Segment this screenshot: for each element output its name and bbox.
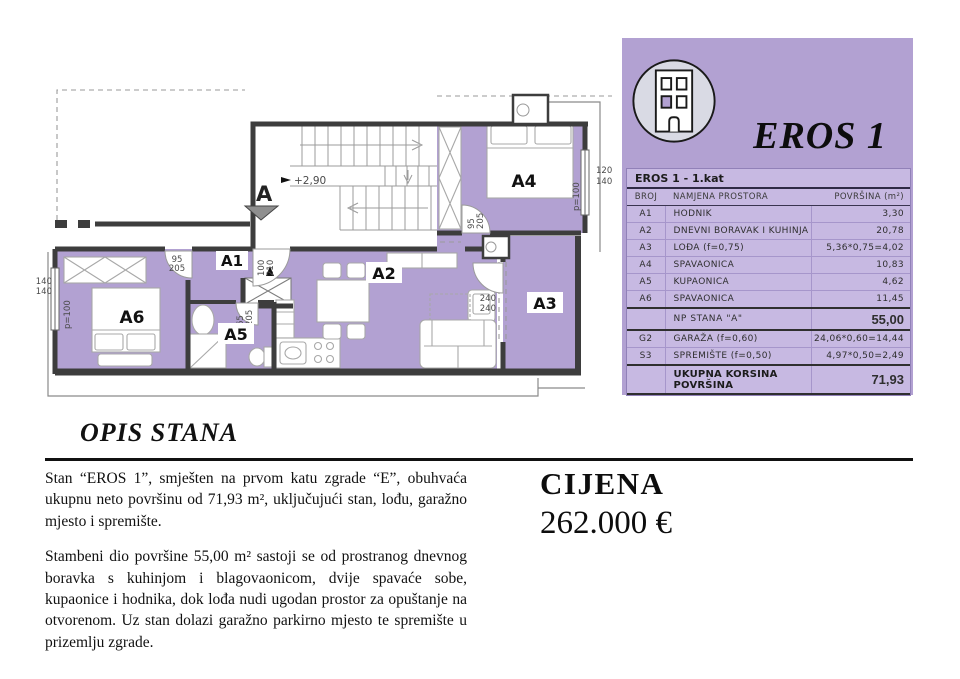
column-header-row: BROJ NAMJENA PROSTORA POVRŠINA (m²) — [627, 189, 910, 206]
table-row: A4 SPAVAONICA 10,83 — [627, 257, 910, 274]
col-namjena: NAMJENA PROSTORA — [665, 189, 811, 206]
row-broj: A1 — [627, 206, 665, 223]
row-broj — [627, 365, 665, 394]
dim-entry-door-h: 210 — [266, 260, 276, 276]
row-broj: A2 — [627, 223, 665, 240]
dim-a4-parapet: p=100 — [572, 182, 582, 211]
row-broj: S3 — [627, 348, 665, 366]
info-panel: EROS 1 EROS 1 - 1.kat BROJ NAMJENA PROST… — [622, 38, 913, 395]
table-header: EROS 1 - 1.kat — [627, 169, 910, 189]
wardrobe-a4 — [439, 127, 461, 229]
divider-rule — [45, 458, 913, 461]
description-paragraph: Stan “EROS 1”, smješten na prvom katu zg… — [45, 468, 467, 532]
row-name: HODNIK — [665, 206, 811, 223]
area-table: EROS 1 - 1.kat BROJ NAMJENA PROSTORA POV… — [626, 168, 911, 396]
col-broj: BROJ — [627, 189, 665, 206]
dim-a6-parapet: p=100 — [63, 300, 73, 329]
dim-a4-window-h: 140 — [596, 177, 612, 187]
row-broj: A5 — [627, 274, 665, 291]
row-area: 10,83 — [811, 257, 910, 274]
row-broj: A4 — [627, 257, 665, 274]
dim-a6-window-h: 140 — [36, 287, 52, 297]
row-broj: G2 — [627, 330, 665, 348]
row-area: 20,78 — [811, 223, 910, 240]
description-text: Stan “EROS 1”, smješten na prvom katu zg… — [45, 468, 467, 667]
section-arrow-icon — [245, 206, 278, 220]
table-row: A3 LOĐA (f=0,75) 5,36*0,75=4,02 — [627, 240, 910, 257]
row-name: SPAVAONICA — [665, 291, 811, 309]
table-row: A6 SPAVAONICA 11,45 — [627, 291, 910, 309]
row-name: SPREMIŠTE (f=0,50) — [665, 348, 811, 366]
table-row: A1 HODNIK 3,30 — [627, 206, 910, 223]
row-area: 11,45 — [811, 291, 910, 309]
row-area: 71,93 — [811, 365, 910, 394]
toilet-icon — [249, 347, 272, 367]
row-area: 3,30 — [811, 206, 910, 223]
table-row: G2 GARAŽA (f=0,60) 24,06*0,60=14,44 — [627, 330, 910, 348]
dim-a6-window-w: 140 — [36, 277, 52, 287]
sofa — [420, 320, 496, 368]
table-row: S3 SPREMIŠTE (f=0,50) 4,97*0,50=2,49 — [627, 348, 910, 366]
description-paragraph: Stambeni dio površine 55,00 m² sastoji s… — [45, 546, 467, 653]
table-row: A2 DNEVNI BORAVAK I KUHINJA 20,78 — [627, 223, 910, 240]
row-area: 4,97*0,50=2,49 — [811, 348, 910, 366]
building-icon — [631, 58, 717, 144]
row-name: UKUPNA KORSINA POVRŠINA — [665, 365, 811, 394]
dim-a6-door-h: 205 — [169, 264, 185, 274]
section-marker: A +2,90 — [245, 175, 326, 220]
room-label-a4: A4 — [512, 172, 537, 192]
col-povrsina: POVRŠINA (m²) — [811, 189, 910, 206]
floor-plan: A +2,90 100 210 95 205 65 205 95 205 240… — [40, 80, 620, 400]
sink-icon — [192, 305, 214, 335]
room-label-a6: A6 — [120, 308, 145, 328]
row-name: SPAVAONICA — [665, 257, 811, 274]
brochure-page: A +2,90 100 210 95 205 65 205 95 205 240… — [0, 0, 960, 679]
row-area: 55,00 — [811, 308, 910, 330]
row-name: KUPAONICA — [665, 274, 811, 291]
row-name: NP STANA "A" — [665, 308, 811, 330]
row-broj: A6 — [627, 291, 665, 309]
row-broj — [627, 308, 665, 330]
dim-loggia-door-h: 240 — [480, 304, 496, 314]
row-broj: A3 — [627, 240, 665, 257]
dim-a4-window-w: 120 — [596, 166, 612, 176]
level-flag-icon — [281, 177, 291, 183]
row-area: 4,62 — [811, 274, 910, 291]
row-name: LOĐA (f=0,75) — [665, 240, 811, 257]
dim-a4-door-h: 205 — [476, 213, 486, 229]
section-letter: A — [256, 182, 273, 206]
row-name: GARAŽA (f=0,60) — [665, 330, 811, 348]
dim-loggia-door-w: 240 — [480, 294, 496, 304]
row-area: 24,06*0,60=14,44 — [811, 330, 910, 348]
section-heading: OPIS STANA — [80, 418, 238, 448]
total-row: UKUPNA KORSINA POVRŠINA 71,93 — [627, 365, 910, 394]
room-label-a3: A3 — [533, 294, 557, 313]
price-value: 262.000 € — [540, 505, 672, 542]
wardrobe-a6 — [64, 257, 146, 283]
room-label-a1: A1 — [221, 252, 243, 270]
table-row: A5 KUPAONICA 4,62 — [627, 274, 910, 291]
room-label-a2: A2 — [372, 264, 396, 283]
price-label: CIJENA — [540, 466, 672, 502]
level-label: +2,90 — [294, 175, 326, 187]
panel-title: EROS 1 — [730, 114, 910, 158]
room-label-a5: A5 — [224, 325, 248, 344]
np-stana-row: NP STANA "A" 55,00 — [627, 308, 910, 330]
row-area: 5,36*0,75=4,02 — [811, 240, 910, 257]
price-block: CIJENA 262.000 € — [540, 466, 672, 542]
row-name: DNEVNI BORAVAK I KUHINJA — [665, 223, 811, 240]
